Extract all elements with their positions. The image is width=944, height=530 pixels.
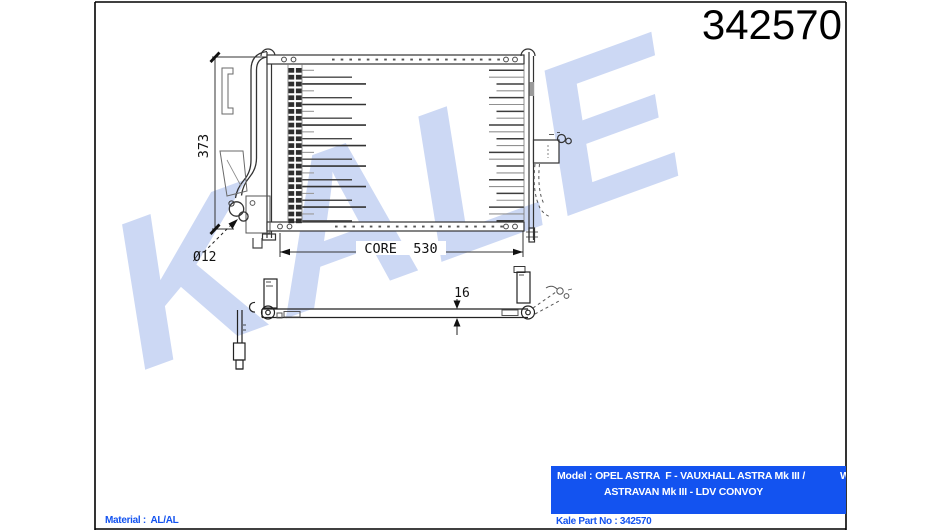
right-fitting-block bbox=[534, 133, 572, 218]
material-value: AL/AL bbox=[151, 515, 179, 526]
dim-373-label: 373 bbox=[196, 134, 212, 158]
material-label: Material : bbox=[105, 515, 151, 526]
model-line-2: ASTRAVAN Mk III - LDV CONVOY bbox=[604, 486, 763, 498]
right-fins bbox=[489, 70, 524, 220]
model-info-box: Model : OPEL ASTRA F - VAUXHALL ASTRA Mk… bbox=[551, 466, 846, 514]
kale-part-no: Kale Part No : 342570 bbox=[556, 516, 651, 527]
front-view: 373 bbox=[193, 49, 571, 265]
core-bottom-rail bbox=[267, 222, 524, 231]
catalog-page: KALE 373 bbox=[0, 0, 944, 530]
model-line-1: Model : OPEL ASTRA F - VAUXHALL ASTRA Mk… bbox=[557, 470, 805, 482]
dim-core: CORE 530 bbox=[280, 231, 523, 257]
technical-drawing: 373 bbox=[0, 0, 944, 530]
dim-16: 16 bbox=[454, 286, 470, 335]
hose-sketch bbox=[533, 286, 572, 314]
left-side-plate bbox=[261, 49, 276, 240]
side-view: 16 bbox=[234, 267, 573, 370]
side-view-pipe bbox=[234, 310, 247, 369]
material-info: Material : AL/AL bbox=[105, 515, 178, 526]
dim-core-label: CORE 530 bbox=[364, 241, 437, 257]
dim-16-label: 16 bbox=[454, 286, 470, 301]
left-fins bbox=[302, 70, 366, 220]
kale-part-no-value: 342570 bbox=[620, 516, 652, 527]
left-pipe-assembly bbox=[220, 52, 270, 249]
core-top-rail bbox=[267, 55, 524, 64]
left-tank-hatch bbox=[288, 68, 302, 223]
model-value-1: OPEL ASTRA F - VAUXHALL ASTRA Mk III / bbox=[595, 470, 805, 482]
dim-373: 373 bbox=[196, 53, 271, 235]
model-label: Model : bbox=[557, 470, 595, 482]
part-number-heading: 342570 bbox=[650, 1, 842, 49]
clipped-text-fragment: W bbox=[840, 470, 846, 482]
kale-part-no-label: Kale Part No : bbox=[556, 516, 620, 527]
dim-port-label: Ø12 bbox=[193, 250, 216, 265]
drawing-border bbox=[95, 2, 846, 530]
